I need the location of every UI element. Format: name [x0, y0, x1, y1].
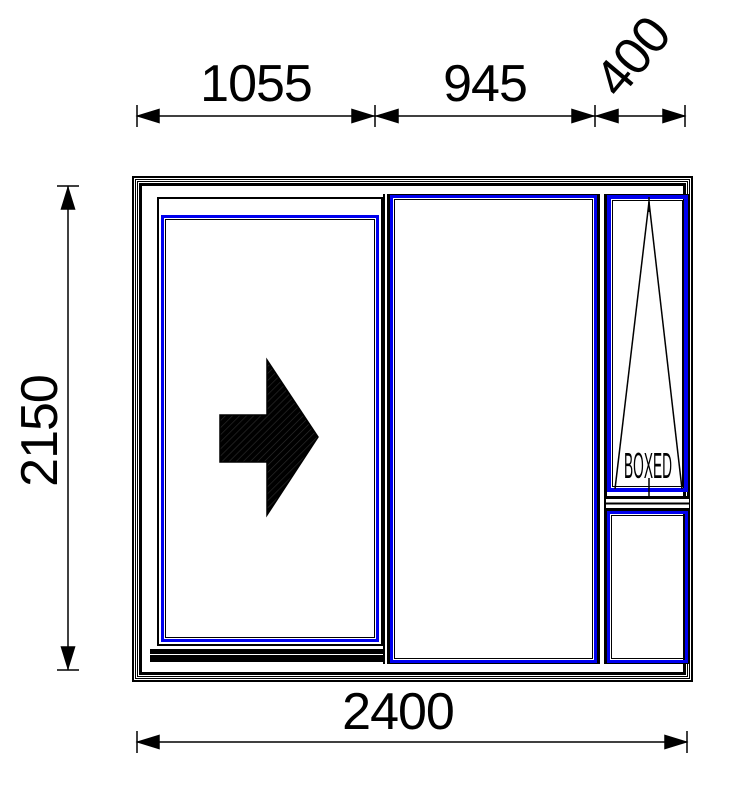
dim-label-left-panel-width: 1055 — [200, 58, 312, 110]
dim-arrow-icon — [62, 188, 75, 209]
window-elevation-drawing: 1055 945 400 2150 2400 — [0, 0, 744, 793]
fixed-panel-glass — [394, 199, 593, 659]
dim-arrow-icon — [663, 110, 684, 123]
sliding-panel — [150, 194, 383, 664]
dim-arrow-icon — [352, 110, 373, 123]
sliding-sash-frame — [157, 197, 383, 646]
dim-arrow-icon — [572, 110, 593, 123]
dim-arrow-icon — [62, 647, 75, 668]
mullion — [598, 194, 606, 664]
right-column: BOXED — [606, 194, 691, 664]
frame-opening: BOXED — [150, 194, 675, 664]
frame-profile-line: BOXED — [139, 183, 686, 675]
dim-arrow-icon — [138, 110, 159, 123]
transom — [606, 497, 689, 510]
window-outer-frame: BOXED — [132, 176, 693, 682]
dim-arrow-icon — [138, 736, 159, 749]
dim-arrow-icon — [377, 110, 398, 123]
dim-label-height: 2150 — [14, 375, 66, 487]
boxed-label: BOXED — [624, 448, 672, 484]
dim-arrow-icon — [665, 736, 686, 749]
dim-label-total-width: 2400 — [342, 686, 454, 738]
right-arrow-icon — [215, 355, 325, 520]
awning-label-holder: BOXED — [606, 194, 689, 497]
fixed-panel — [389, 194, 598, 664]
dim-arrow-icon — [597, 110, 618, 123]
sliding-track — [150, 649, 383, 662]
lower-fixed-glass — [611, 515, 684, 659]
dim-label-centre-panel-width: 945 — [443, 58, 527, 110]
